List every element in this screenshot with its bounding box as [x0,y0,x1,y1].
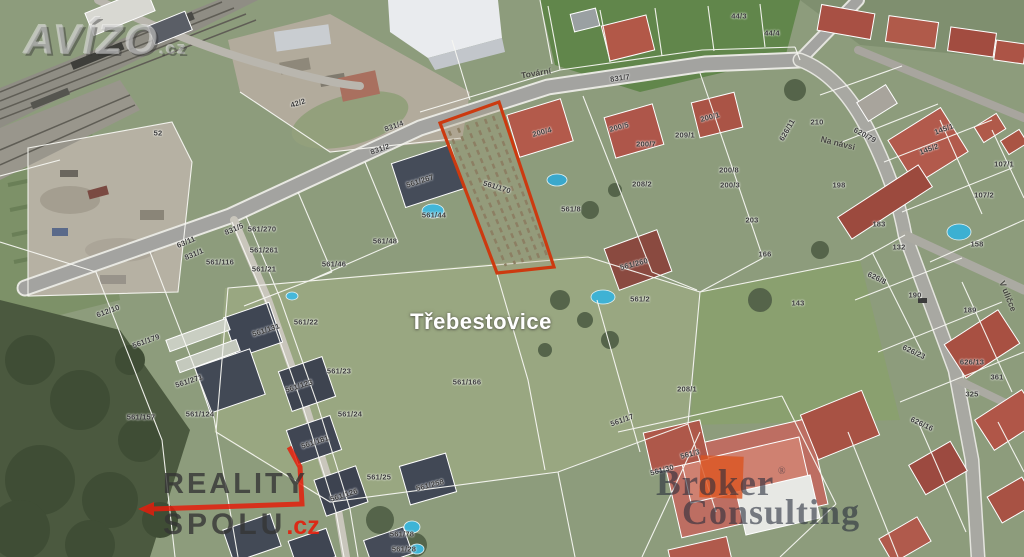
parcel-number-label: 209/1 [675,131,695,140]
consulting-text: Consulting [682,491,860,533]
reality-text: REALITY [163,470,320,499]
parcel-number-label: 166 [758,250,771,259]
parcel-number-label: 143 [791,299,804,308]
parcel-number-label: 561/46 [322,260,346,269]
parcel-number-label: 561/25 [367,473,391,482]
parcel-number-label: 210 [810,118,823,127]
parcel-number-label: 561/44 [422,211,446,220]
parcel-number-label: 561/78 [390,530,414,539]
parcel-number-label: 561/261 [250,246,279,255]
avizo-logo-text: AVÍZO [24,16,159,63]
reality-tld: .cz [286,512,319,540]
parcel-number-label: 561/166 [453,378,482,387]
parcel-number-label: 183 [872,220,885,229]
parcel-number-label: 561/23 [327,367,351,376]
avizo-tld: .cz [159,39,188,58]
cadastral-aerial-map: 5242/2831/4831/2831/7831/544/344/463/118… [0,0,1024,557]
parcel-number-label: 561/8 [561,205,581,214]
parcel-number-label: 561/24 [338,410,362,419]
parcel-number-label: 200/3 [720,181,740,190]
parcel-number-label: 107/2 [974,191,994,200]
parcel-number-label: 561/28 [392,545,416,554]
parcel-number-label: 203 [745,216,758,225]
parcel-number-label: 361 [990,373,1003,382]
parcel-number-label: 561/2 [630,295,650,304]
parcel-number-label: 200/8 [719,166,739,175]
parcel-number-label: 200/7 [636,140,656,149]
parcel-number-label: 208/1 [677,385,697,394]
parcel-number-label: 561/157 [127,413,156,422]
avizo-watermark: AVÍZO.cz [24,16,188,64]
place-name-label: Třebestovice [410,309,552,335]
parcel-number-label: 132 [892,243,905,252]
parcel-number-label: 626/13 [960,358,984,367]
registered-mark: ® [778,466,786,477]
spolu-text: SPOLU [163,510,286,540]
parcel-number-label: 561/270 [248,225,277,234]
parcel-number-label: 561/124 [186,410,215,419]
parcel-number-label: 44/3 [731,12,746,21]
parcel-number-label: 52 [154,129,163,138]
broker-consulting-watermark: Broker ® Consulting [652,450,912,550]
parcel-number-label: 44/4 [764,29,779,38]
parcel-number-label: 190 [908,291,921,300]
parcel-number-label: 107/1 [994,160,1014,169]
parcel-number-label: 561/116 [206,258,234,267]
parcel-number-label: 208/2 [632,180,652,189]
parcel-number-label: 325 [965,390,978,399]
parcel-number-label: 158 [970,240,983,249]
parcel-number-label: 561/48 [373,237,397,246]
reality-spolu-watermark: REALITY SPOLU.cz [163,470,320,540]
parcel-number-label: 561/22 [294,318,318,327]
parcel-number-label: 198 [832,181,845,190]
parcel-number-label: 189 [963,306,976,315]
parcel-number-label: 561/21 [252,265,276,274]
